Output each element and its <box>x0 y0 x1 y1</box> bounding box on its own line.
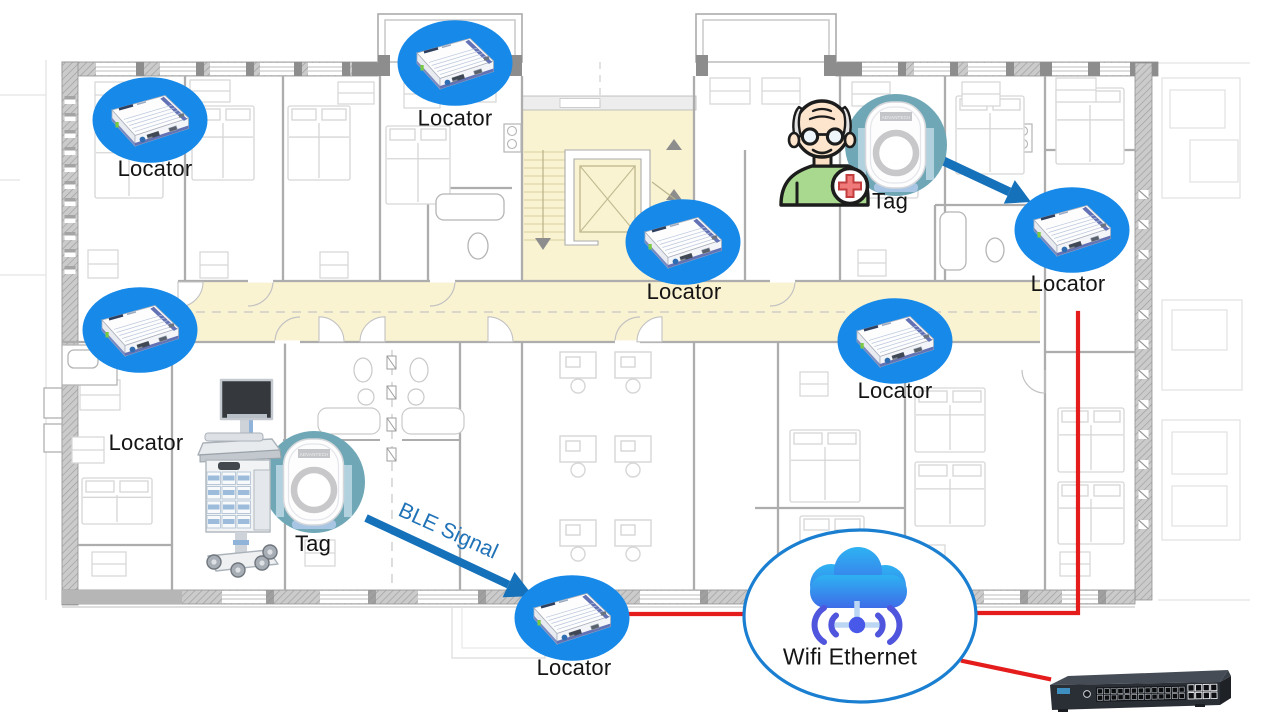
svg-text:Locator: Locator <box>1031 271 1106 296</box>
svg-text:Locator: Locator <box>118 156 193 181</box>
svg-text:Locator: Locator <box>647 279 722 304</box>
svg-text:Locator: Locator <box>418 106 493 131</box>
svg-text:Tag: Tag <box>872 189 908 214</box>
svg-text:Wifi Ethernet: Wifi Ethernet <box>783 644 918 670</box>
svg-text:Locator: Locator <box>858 378 933 403</box>
svg-text:ADVANTECH: ADVANTECH <box>300 452 329 457</box>
svg-text:Tag: Tag <box>295 531 331 556</box>
svg-text:ADVANTECH: ADVANTECH <box>882 115 911 120</box>
svg-text:Locator: Locator <box>537 655 612 680</box>
svg-text:Locator: Locator <box>109 430 184 455</box>
